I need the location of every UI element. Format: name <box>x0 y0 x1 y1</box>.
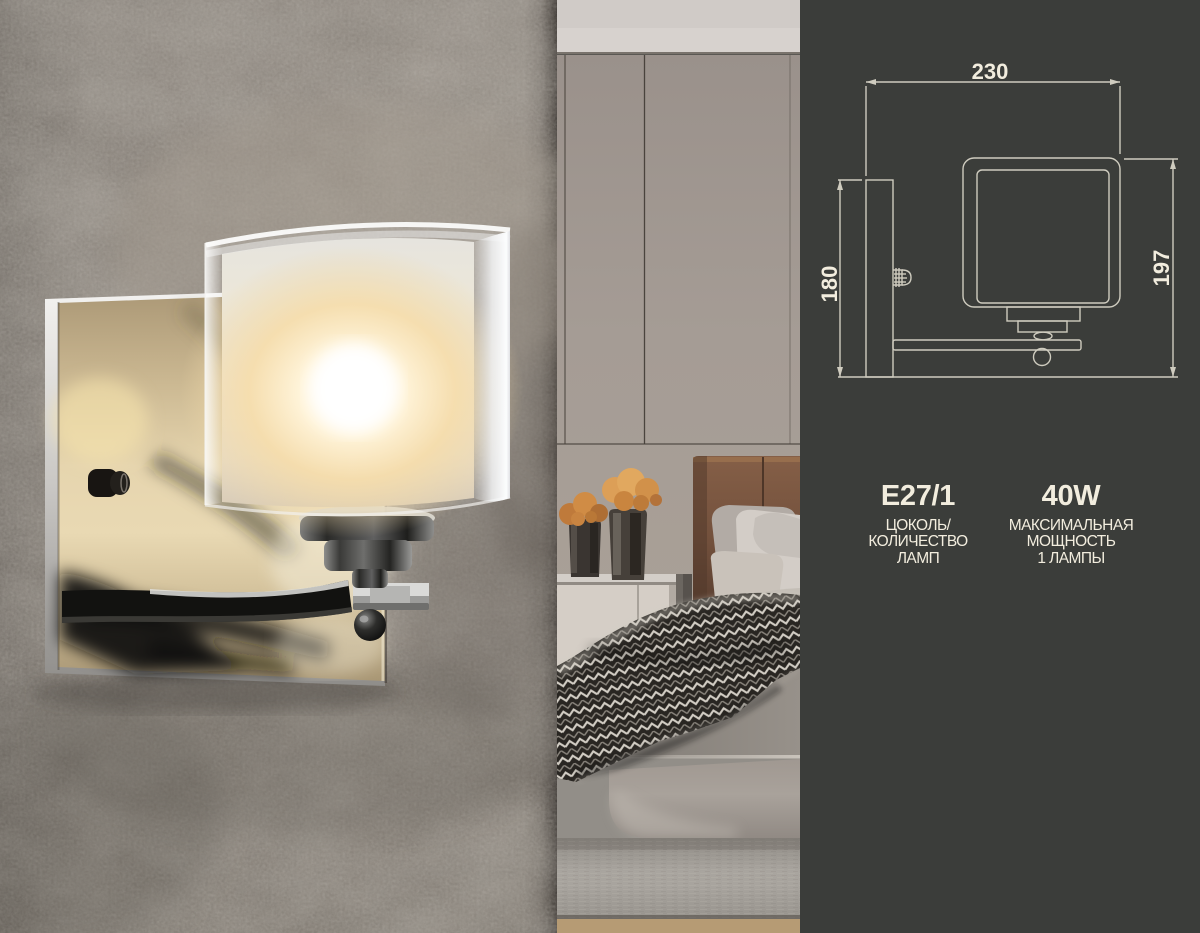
svg-text:180: 180 <box>817 266 842 303</box>
svg-text:230: 230 <box>972 59 1009 84</box>
svg-text:197: 197 <box>1149 250 1174 287</box>
